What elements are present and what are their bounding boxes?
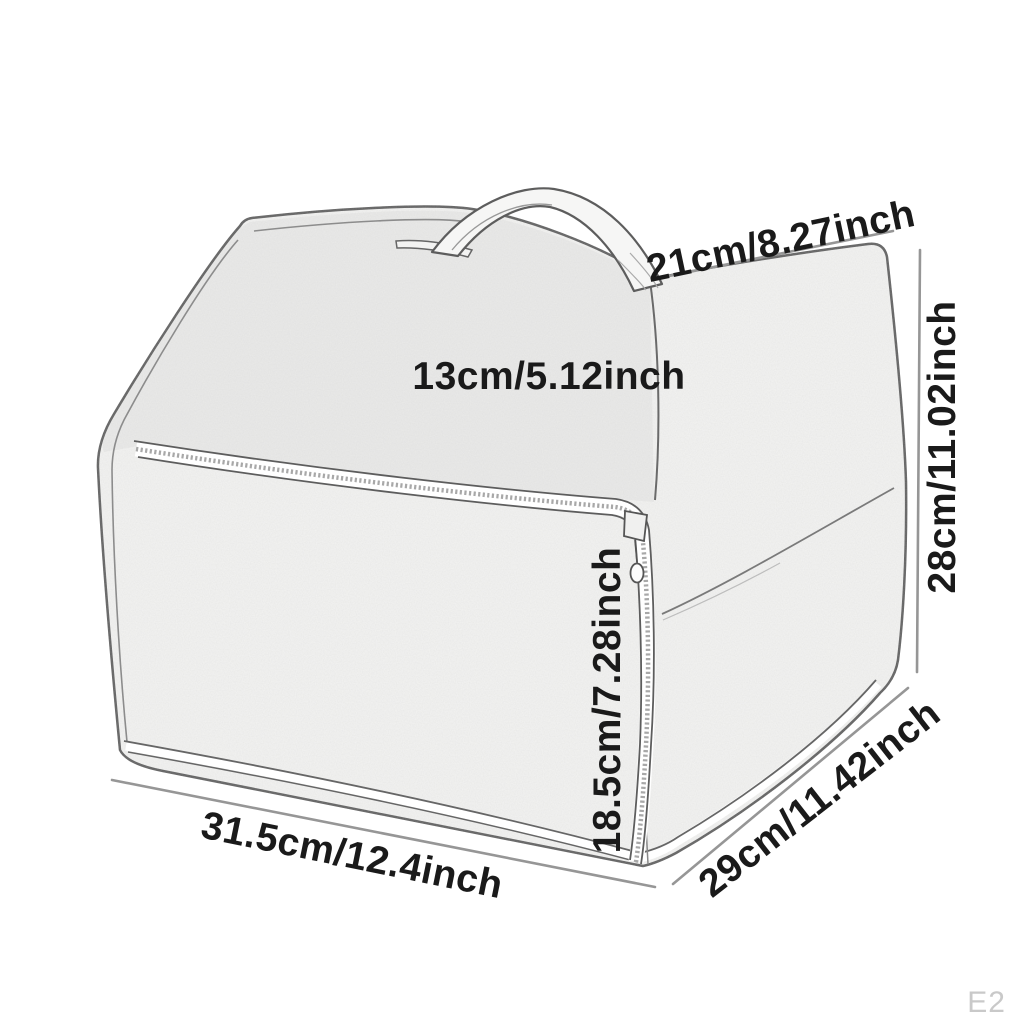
dimension-line-height [917, 250, 920, 672]
dimension-label-front-panel-height: 18.5cm/7.28inch [586, 547, 630, 854]
product-dimension-diagram: 21cm/8.27inch 13cm/5.12inch 28cm/11.02in… [0, 0, 1024, 1024]
bag-sketch [0, 0, 1024, 1024]
bag-body [98, 207, 906, 866]
zipper-pull-ring [631, 564, 644, 583]
dimension-label-overall-height: 28cm/11.02inch [921, 300, 965, 593]
watermark: E2 [967, 986, 1006, 1020]
dimension-label-top-panel: 13cm/5.12inch [412, 355, 685, 399]
zipper-slider [624, 511, 647, 541]
